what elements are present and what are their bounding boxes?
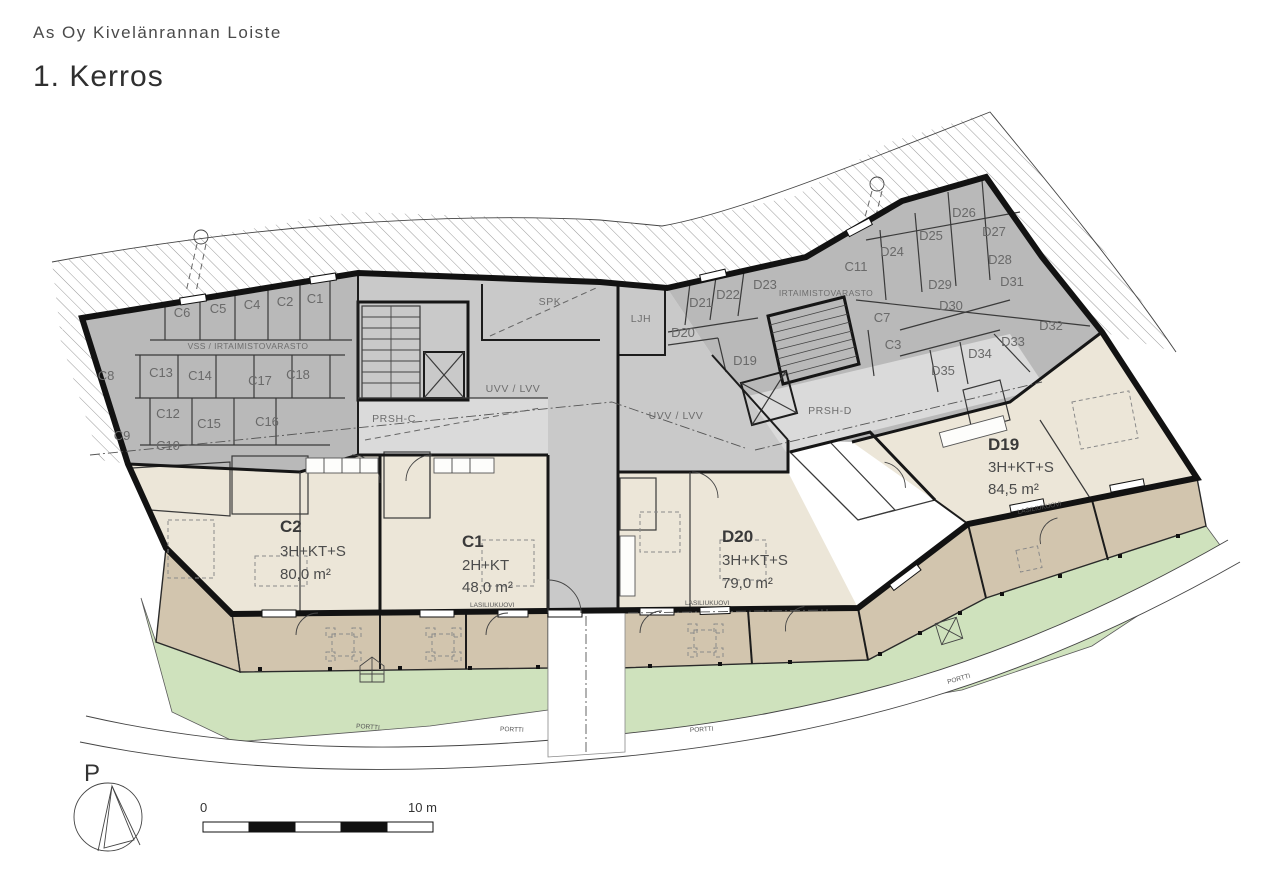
apartment-id: C1 — [462, 532, 484, 551]
storage-unit-label: D19 — [733, 353, 757, 368]
room-label-prsh-c: PRSH-C — [372, 413, 416, 425]
floor-plan: As Oy Kivelänrannan Loiste 1. Kerros — [0, 0, 1261, 888]
apartment-layout: 3H+KT+S — [722, 552, 788, 569]
apartment-id: C2 — [280, 517, 302, 536]
portti-label: PORTTI — [500, 726, 524, 734]
zone-stair-hall-c — [358, 398, 548, 455]
storage-unit-label: C10 — [156, 438, 180, 453]
room-label-uvv-east: UVV / LVV — [649, 410, 704, 422]
storage-unit-label: D31 — [1000, 274, 1024, 289]
room-label-prsh-d: PRSH-D — [808, 405, 852, 417]
storage-unit-label: C8 — [98, 368, 115, 383]
scale-bar: 0 10 m — [200, 800, 437, 832]
storage-unit-label: C1 — [307, 291, 324, 306]
storage-unit-label: D27 — [982, 224, 1006, 239]
storage-unit-label: C12 — [156, 406, 180, 421]
storage-unit-label: C17 — [248, 373, 272, 388]
storage-unit-label: C11 — [845, 259, 868, 274]
storage-unit-label: D23 — [753, 277, 777, 292]
storage-unit-label: C16 — [255, 414, 279, 429]
storage-unit-label: D21 — [689, 295, 713, 310]
storage-unit-label: C3 — [885, 337, 902, 352]
scale-end-label: 10 m — [408, 800, 437, 815]
portti-label: PORTTI — [690, 726, 714, 734]
storage-unit-label: D25 — [919, 228, 943, 243]
apartment-id: D20 — [722, 527, 753, 546]
storage-unit-label: D28 — [988, 252, 1012, 267]
apartment-layout: 2H+KT — [462, 557, 509, 574]
storage-unit-label: D20 — [671, 325, 695, 340]
floor-title: 1. Kerros — [33, 60, 164, 93]
storage-unit-label: D33 — [1001, 334, 1025, 349]
storage-unit-label: D26 — [952, 205, 976, 220]
apartment-area: 79,0 m² — [722, 575, 773, 592]
project-title: As Oy Kivelänrannan Loiste — [33, 23, 282, 42]
apartment-layout: 3H+KT+S — [280, 543, 346, 560]
storage-unit-label: D34 — [968, 346, 992, 361]
apartment-layout: 3H+KT+S — [988, 459, 1054, 476]
room-label-ljh: LJH — [631, 313, 651, 325]
storage-unit-label: D29 — [928, 277, 952, 292]
apartment-area: 84,5 m² — [988, 481, 1039, 498]
floor-plan-page: As Oy Kivelänrannan Loiste 1. Kerros — [0, 0, 1261, 888]
storage-unit-label: C13 — [149, 365, 173, 380]
apartment-id: D19 — [988, 435, 1019, 454]
lasiliukuovi-label: LASILIUKUOVI — [685, 600, 730, 607]
entrance-walkway — [548, 613, 625, 757]
storage-unit-label: C9 — [114, 428, 131, 443]
storage-unit-label: D35 — [931, 363, 955, 378]
north-label: P — [84, 760, 100, 787]
storage-unit-label: C6 — [174, 305, 191, 320]
storage-unit-label: C5 — [210, 301, 227, 316]
room-label-uvv-west: UVV / LVV — [486, 383, 541, 395]
storage-unit-label: D24 — [880, 244, 904, 259]
storage-unit-label: C7 — [874, 310, 891, 325]
storage-unit-label: C2 — [277, 294, 294, 309]
room-label-vss: VSS / IRTAIMISTOVARASTO — [188, 341, 309, 351]
storage-unit-label: C14 — [188, 368, 212, 383]
lasiliukuovi-label: LASILIUKUOVI — [470, 602, 515, 609]
room-label-spk: SPK — [539, 296, 562, 308]
apartment-area: 80,0 m² — [280, 566, 331, 583]
storage-unit-label: C18 — [286, 367, 310, 382]
storage-unit-label: C4 — [244, 297, 261, 312]
storage-unit-label: D32 — [1039, 318, 1063, 333]
storage-unit-label: D30 — [939, 298, 963, 313]
apartment-area: 48,0 m² — [462, 579, 513, 596]
storage-unit-label: C15 — [197, 416, 221, 431]
scale-start-label: 0 — [200, 800, 207, 815]
storage-unit-label: D22 — [716, 287, 740, 302]
north-arrow-icon: P — [74, 760, 142, 851]
room-label-irtaimisto: IRTAIMISTOVARASTO — [779, 288, 873, 298]
